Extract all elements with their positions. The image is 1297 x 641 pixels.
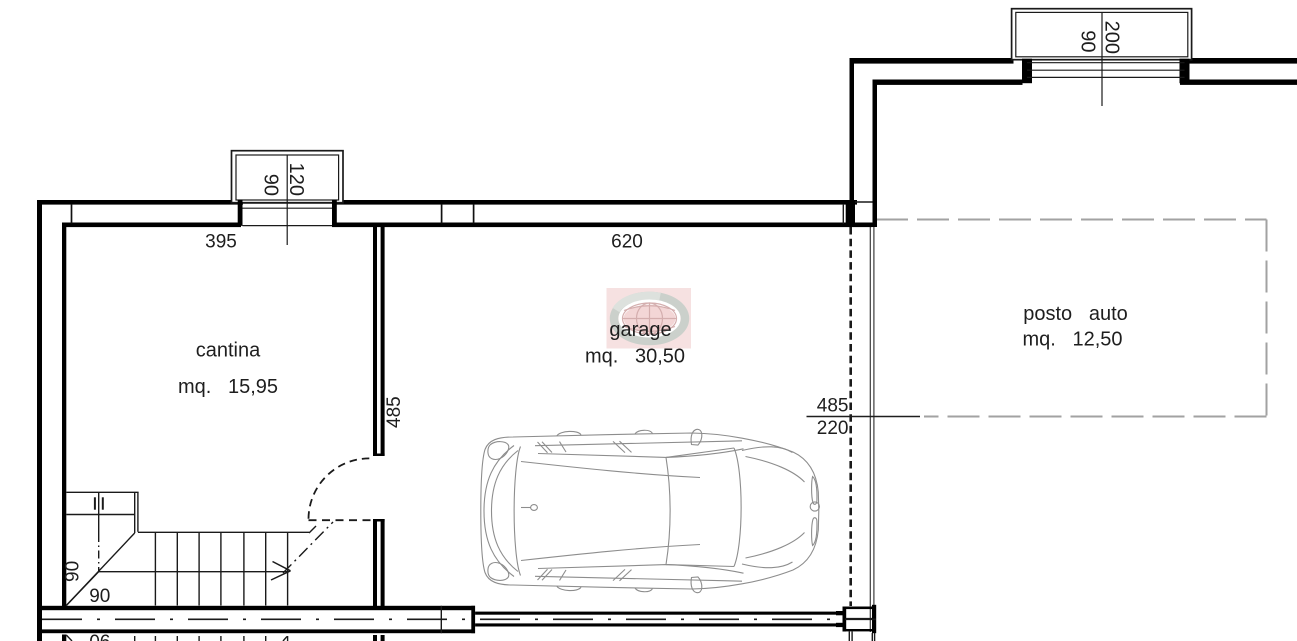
svg-text:395: 395 — [205, 232, 237, 253]
svg-text:485: 485 — [817, 396, 849, 417]
svg-text:90: 90 — [1077, 30, 1099, 52]
svg-text:cantina: cantina — [196, 340, 261, 362]
svg-text:mq. 30,50: mq. 30,50 — [585, 346, 685, 368]
svg-text:90: 90 — [260, 174, 282, 196]
svg-text:620: 620 — [611, 232, 643, 253]
svg-text:garage: garage — [609, 319, 671, 341]
svg-text:90: 90 — [89, 630, 110, 641]
svg-text:90: 90 — [63, 561, 84, 582]
svg-text:mq. 15,95: mq. 15,95 — [178, 376, 278, 398]
svg-text:mq. 12,50: mq. 12,50 — [1022, 329, 1122, 351]
svg-text:90: 90 — [89, 586, 110, 607]
svg-text:485: 485 — [384, 396, 405, 428]
svg-text:200: 200 — [1101, 21, 1123, 54]
svg-text:posto auto: posto auto — [1023, 303, 1128, 325]
svg-text:120: 120 — [285, 163, 307, 196]
svg-text:220: 220 — [817, 418, 849, 439]
